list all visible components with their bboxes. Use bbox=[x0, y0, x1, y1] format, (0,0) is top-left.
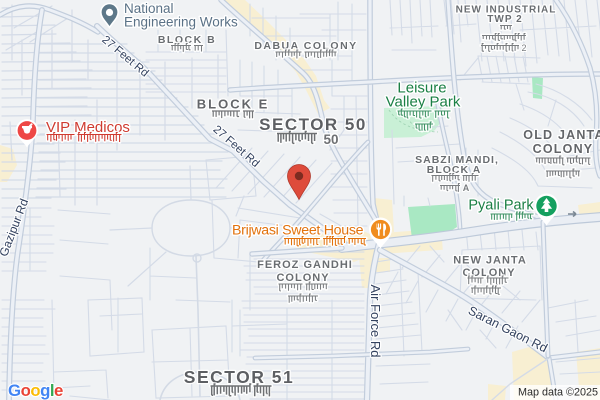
svg-text:A: A bbox=[463, 183, 470, 193]
svg-text:NEW JANTA: NEW JANTA bbox=[453, 255, 527, 267]
svg-text:Google: Google bbox=[8, 381, 63, 400]
svg-text:TWP 2: TWP 2 bbox=[487, 14, 522, 25]
svg-text:SECTOR 51: SECTOR 51 bbox=[184, 367, 294, 387]
svg-text:50: 50 bbox=[323, 132, 338, 147]
svg-text:Map data ©2025: Map data ©2025 bbox=[518, 387, 598, 399]
svg-text:COLONY: COLONY bbox=[276, 272, 329, 284]
svg-text:OLD JANTA: OLD JANTA bbox=[523, 128, 600, 142]
svg-text:FEROZ GANDHI: FEROZ GANDHI bbox=[257, 259, 353, 271]
svg-text:COLONY: COLONY bbox=[533, 142, 594, 156]
svg-text:DABUA COLONY: DABUA COLONY bbox=[254, 40, 357, 52]
svg-text:2: 2 bbox=[521, 43, 526, 53]
svg-text:SECTOR 50: SECTOR 50 bbox=[259, 115, 367, 134]
svg-text:Air Force Rd: Air Force Rd bbox=[368, 285, 383, 358]
svg-text:Engineering Works: Engineering Works bbox=[124, 15, 238, 30]
svg-text:BLOCK E: BLOCK E bbox=[197, 97, 270, 112]
svg-text:Valley Park: Valley Park bbox=[386, 94, 461, 111]
